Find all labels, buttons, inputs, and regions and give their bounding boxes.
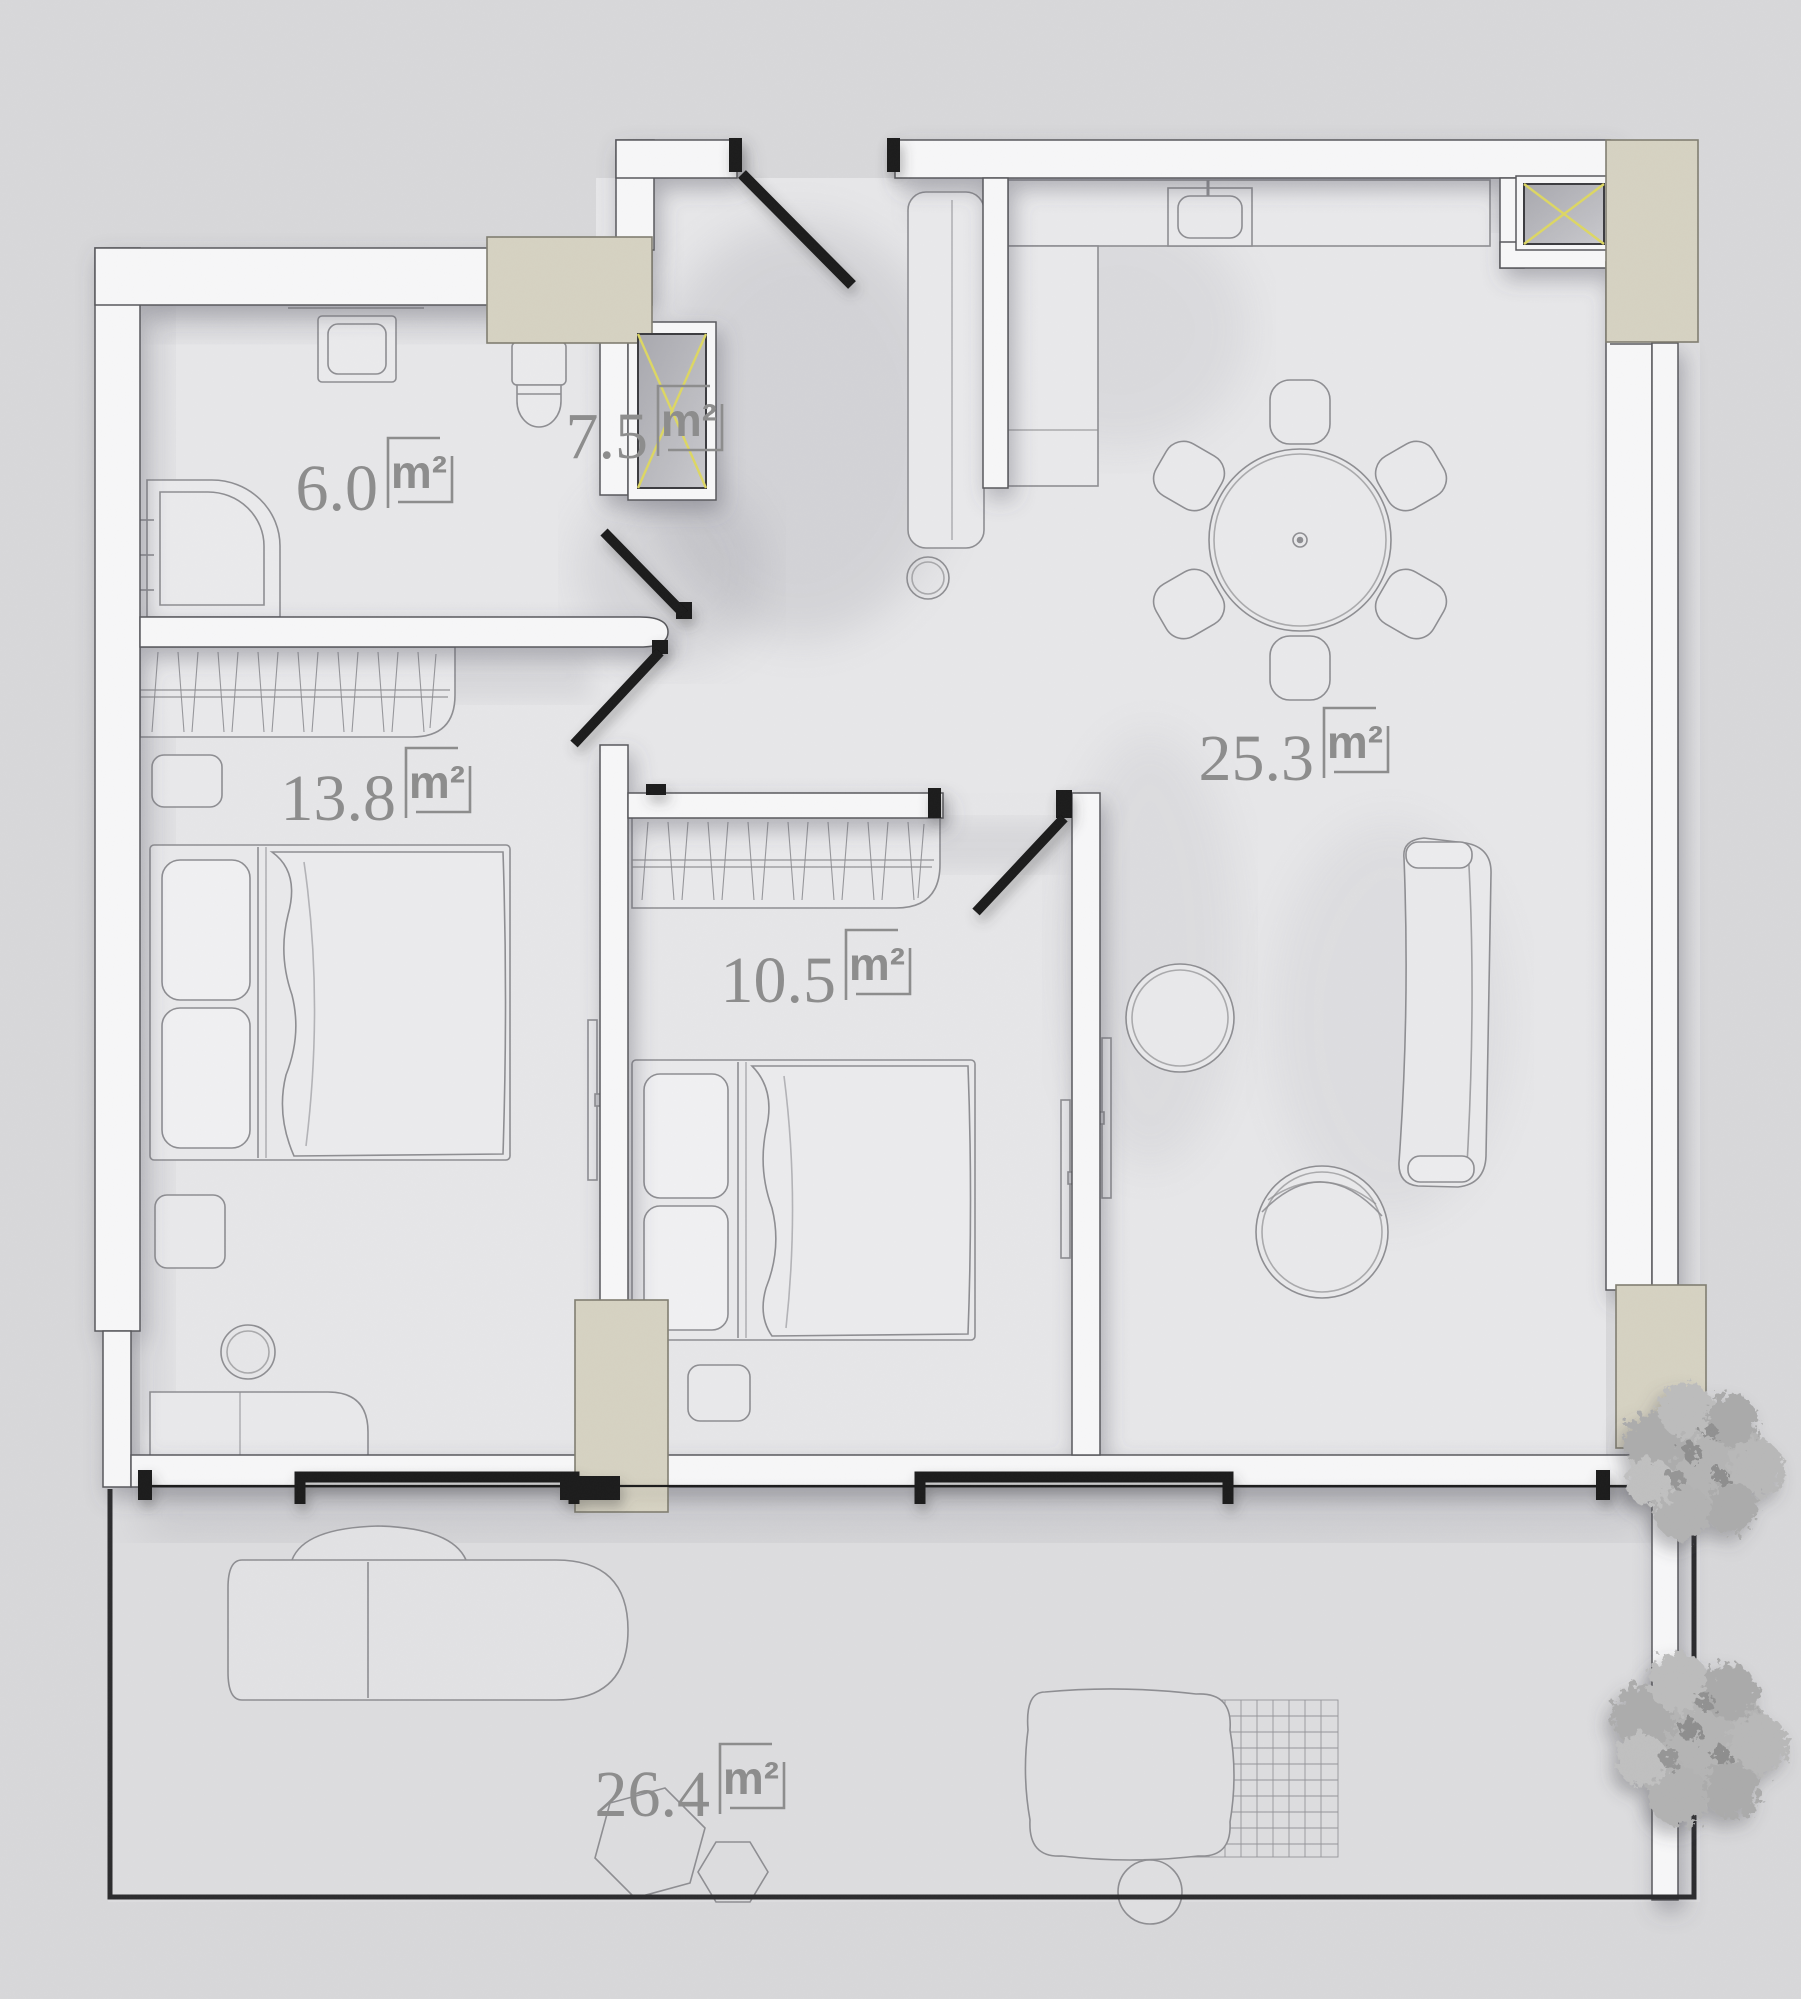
- floorplan-svg: 6.0 m² 7.5 m² 13.8 m² 10.5 m² 25.3 m²: [0, 0, 1801, 1999]
- area-unit: m²: [409, 756, 465, 808]
- area-unit: m²: [849, 938, 905, 990]
- area-value: 26.4: [595, 1758, 711, 1831]
- area-unit: m²: [723, 1752, 779, 1804]
- area-value: 25.3: [1199, 722, 1315, 795]
- area-value: 6.0: [296, 452, 379, 525]
- area-value: 10.5: [721, 944, 837, 1017]
- area-unit: m²: [1327, 716, 1383, 768]
- floorplan-page: 6.0 m² 7.5 m² 13.8 m² 10.5 m² 25.3 m²: [0, 0, 1801, 1999]
- area-unit: m²: [661, 394, 717, 446]
- area-value: 7.5: [566, 400, 649, 473]
- area-value: 13.8: [281, 762, 397, 835]
- floor-texture: [80, 125, 1710, 1915]
- area-unit: m²: [391, 446, 447, 498]
